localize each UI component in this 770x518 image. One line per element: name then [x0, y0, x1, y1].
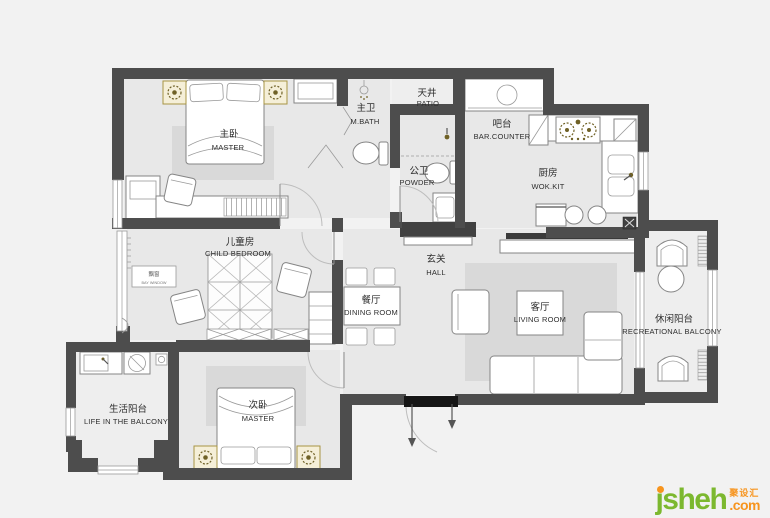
patio-label-zh: 天井 [417, 87, 436, 99]
balcony-chair [658, 356, 688, 381]
dining-table [344, 287, 400, 325]
tv-console [500, 240, 644, 253]
armchair [452, 290, 489, 334]
play-mat [208, 254, 272, 338]
kitchen-label-zh: 厨房 [538, 167, 557, 179]
child-chair [170, 289, 206, 325]
floor-drain-icon [156, 354, 167, 365]
child-bedroom-label-zh: 儿童房 [226, 236, 255, 248]
bar-counter-label-en: BAR.COUNTER [474, 132, 531, 141]
second-nightstand-left [194, 446, 217, 469]
child-desk [309, 292, 335, 344]
logo-tld-text: .com [729, 498, 760, 512]
child-chair [276, 262, 312, 298]
balcony-table [658, 266, 684, 292]
child-bedroom-label-en: CHILD BEDROOM [205, 249, 271, 258]
second-bedroom-label-en: MASTER [242, 414, 275, 423]
entry-door-arc [406, 407, 437, 452]
jsheh-watermark: jsheh 聚设汇 .com [655, 487, 760, 513]
bay-window-label-en: BAY WINDOW [142, 281, 167, 285]
logo-text: jsheh [655, 487, 726, 513]
laundry-sink [80, 352, 122, 374]
stove [556, 117, 600, 143]
patio-label-en: PATIO [417, 99, 439, 108]
dining-label-en: DINING ROOM [344, 308, 398, 317]
floor-plan-canvas: 主卧 MASTER 主卫 M.BATH 天井 PATIO 吧台 BAR.COUN… [0, 0, 770, 518]
logo-dot-icon [657, 486, 664, 493]
master-chair [163, 173, 196, 206]
hall-label-en: HALL [426, 268, 446, 277]
recreational-balcony-label-en: RECREATIONAL BALCONY [622, 327, 721, 336]
coffee-table [517, 291, 563, 335]
dining-chair [374, 268, 395, 285]
life-balcony-label-zh: 生活阳台 [109, 403, 147, 415]
wardrobe-cabinet [294, 79, 337, 103]
master-bedroom-label-zh: 主卧 [219, 128, 239, 140]
kitchen-label-en: WOK.KIT [531, 182, 564, 191]
second-nightstand-right [297, 446, 320, 469]
second-bedroom-label-zh: 次卧 [248, 399, 268, 411]
radiator-grill [698, 350, 707, 380]
master-bath-label-zh: 主卫 [356, 102, 376, 114]
dining-chair [346, 268, 367, 285]
bay-window-label: 飘窗 BAY WINDOW [132, 266, 176, 287]
master-bath-label-en: M.BATH [351, 117, 380, 126]
floor-plan: 主卧 MASTER 主卫 M.BATH 天井 PATIO 吧台 BAR.COUN… [0, 0, 770, 518]
recreational-balcony-label-zh: 休闲阳台 [655, 313, 693, 325]
master-nightstand-left [163, 81, 186, 104]
bar-stool [588, 206, 606, 224]
utility-boxes [623, 217, 636, 229]
powder-label-en: POWDER [400, 178, 435, 187]
master-toilet [353, 142, 388, 165]
bay-window-label-zh: 飘窗 [148, 270, 160, 278]
washing-machine [124, 352, 150, 374]
living-label-zh: 客厅 [530, 301, 550, 313]
powder-label-zh: 公卫 [409, 166, 429, 177]
child-closet-row [207, 329, 308, 340]
entry-direction-arrows [408, 404, 456, 447]
dining-label-zh: 餐厅 [361, 294, 381, 306]
powder-sink-cabinet [433, 193, 457, 222]
master-bedroom-label-en: MASTER [212, 143, 245, 152]
bar-stool [565, 206, 583, 224]
master-nightstand-right [264, 81, 287, 104]
living-label-en: LIVING ROOM [514, 315, 566, 324]
balcony-chair [657, 240, 687, 266]
hall-label-zh: 玄关 [426, 253, 446, 265]
radiator-grill [698, 236, 707, 266]
bar-counter-label-zh: 吧台 [492, 118, 511, 130]
life-balcony-label-en: LIFE IN THE BALCONY [84, 417, 168, 426]
dining-chair [374, 328, 395, 345]
dining-chair [346, 328, 367, 345]
master-closet [126, 176, 160, 222]
